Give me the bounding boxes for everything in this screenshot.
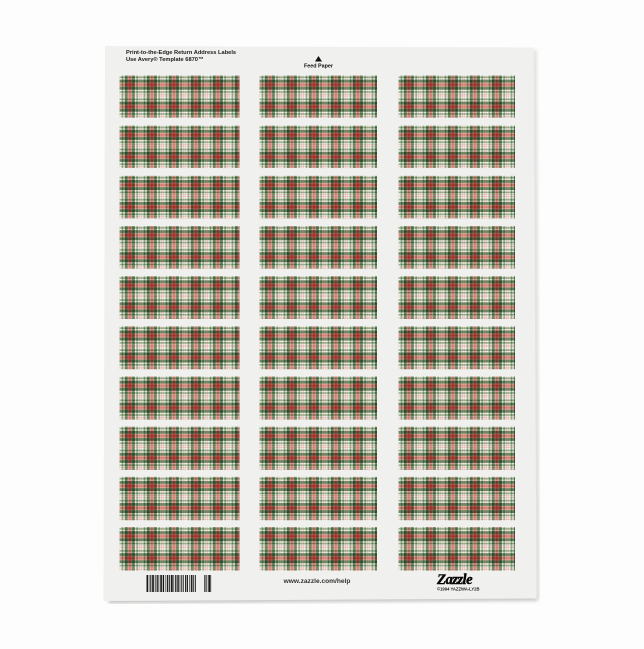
svg-text:Print-to-the-Edge Return Addre: Print-to-the-Edge Return Address Labels bbox=[126, 50, 236, 56]
svg-text:www.zazzle.com/help: www.zazzle.com/help bbox=[283, 578, 351, 585]
svg-text:Feed Paper: Feed Paper bbox=[304, 64, 334, 70]
svg-text:©1994 YAZZWA-LY2B: ©1994 YAZZWA-LY2B bbox=[437, 587, 480, 592]
svg-text:Use Avery® Template 6870™: Use Avery® Template 6870™ bbox=[126, 56, 204, 63]
